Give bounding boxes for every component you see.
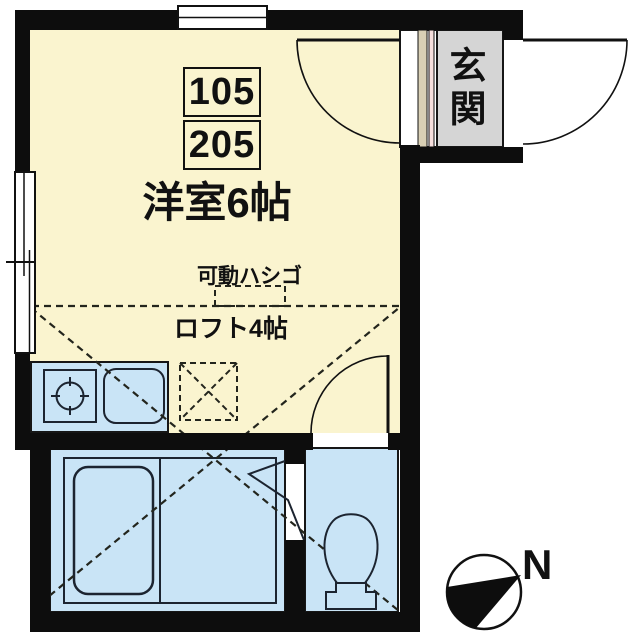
compass-north-label: N xyxy=(522,541,552,589)
compass xyxy=(447,555,521,629)
wall-bath-left xyxy=(30,448,50,632)
floor-plan: 105 205 洋室6帖 可動ハシゴ ロフト4帖 玄関 N xyxy=(0,0,640,640)
unit-number-205: 205 xyxy=(183,120,261,170)
window-top xyxy=(178,6,267,29)
wall-main-bottom-right xyxy=(388,433,402,450)
window-left xyxy=(6,172,35,353)
wall-right xyxy=(400,145,420,632)
entrance-front-door xyxy=(523,40,627,144)
bathroom-floor xyxy=(50,448,285,612)
room-name-label: 洋室6帖 xyxy=(127,169,307,230)
wall-top xyxy=(15,10,523,30)
threshold-strip-pink xyxy=(429,30,434,147)
loft-label: ロフト4帖 xyxy=(174,309,288,345)
wall-bottom xyxy=(30,612,420,632)
ladder-label: 可動ハシゴ xyxy=(197,260,302,290)
unit-number-105-text: 105 xyxy=(189,71,255,114)
toilet-icon xyxy=(324,514,377,609)
entrance-label: 玄関 xyxy=(446,46,483,132)
wall-genkan-step xyxy=(400,147,523,163)
wall-bath-toilet-lower xyxy=(285,540,305,612)
unit-number-205-text: 205 xyxy=(189,124,255,167)
threshold-strip-beige xyxy=(418,30,427,147)
unit-number-105: 105 xyxy=(183,67,261,117)
wall-bath-toilet-upper xyxy=(285,448,305,464)
wall-main-bottom-left xyxy=(15,433,313,450)
wall-genkan-right xyxy=(503,10,523,40)
